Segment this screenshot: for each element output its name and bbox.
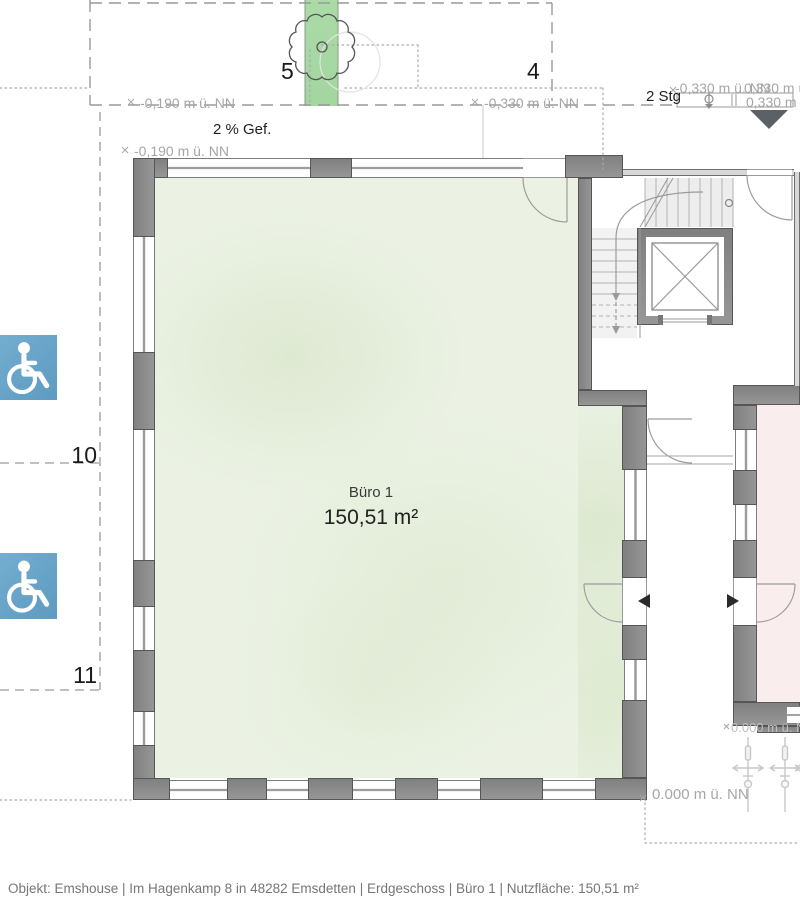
stair-left-flight-pad: [592, 228, 637, 338]
window-left-2: [133, 430, 155, 560]
wall-left-seg2: [133, 352, 155, 430]
level-label-top: -0,190 m ü. NN: [140, 95, 235, 111]
window-bottom-4: [438, 780, 480, 800]
adjacent-room-fill: [757, 405, 800, 702]
accessible-parking-sign-1: [0, 335, 57, 400]
wall-stairhall-right: [794, 172, 800, 386]
level-label-right-lower: 0,330 m ü: [746, 94, 800, 110]
dashed-building-outline: [90, 0, 677, 105]
wall-corridor-left-2: [622, 540, 647, 578]
wall-pink-left-4: [733, 625, 757, 702]
wall-pink-left-2: [733, 470, 757, 505]
window-bottom-5: [543, 780, 595, 800]
wall-bottom-corner-l: [133, 778, 170, 800]
wall-left-seg4: [133, 650, 155, 712]
stairhall-door-opening: [747, 169, 792, 176]
wall-pink-top: [733, 385, 800, 405]
wall-corridor-left-4: [622, 700, 647, 778]
window-pink-2: [735, 505, 757, 540]
wall-bottom-corner-r: [595, 778, 647, 800]
grid-axis-4: 4: [527, 58, 540, 85]
window-bottom-3: [353, 780, 395, 800]
room-name: Büro 1: [271, 484, 471, 501]
footer-project-info: Objekt: Emshouse | Im Hagenkamp 8 in 482…: [8, 881, 639, 896]
planting-strip: [305, 0, 338, 106]
grid-axis-10: 10: [57, 442, 97, 469]
grid-axis-11: 11: [57, 662, 97, 689]
window-left-1: [133, 237, 155, 352]
wall-bottom-pier-3: [395, 778, 438, 800]
window-corridor-left: [624, 470, 647, 540]
grid-axis-5: 5: [281, 58, 294, 85]
room-area: 150,51 m²: [271, 506, 471, 530]
wall-step: [578, 390, 647, 406]
wall-top-pier: [310, 158, 352, 178]
wheelchair-icon: [0, 553, 57, 619]
wall-bottom-pier-1: [227, 778, 267, 800]
wheelchair-icon: [0, 335, 57, 400]
elevator-shaft-inner: [646, 237, 724, 316]
pink-door-opening: [733, 578, 757, 625]
level-label-wall: -0,190 m ü. NN: [134, 143, 229, 159]
wall-bottom-pier-2: [308, 778, 353, 800]
stair-upper-flight-pad: [645, 178, 733, 227]
level-label-mid: -0,330 m ü. NN: [484, 95, 579, 111]
window-top-1: [168, 158, 310, 178]
window-corridor-left-2: [624, 660, 647, 700]
window-bottom-2: [267, 780, 308, 800]
level-label-zero: 0.000 m ü. NN: [652, 786, 749, 803]
wall-stair-divider: [578, 178, 592, 390]
wall-corridor-left-3: [622, 625, 647, 660]
wall-bottom-pier-4: [480, 778, 543, 800]
wall-left-seg1: [133, 158, 155, 237]
window-top-2: [352, 158, 523, 178]
wall-pink-left-1: [733, 405, 757, 430]
window-left-4: [133, 712, 155, 745]
slope-label: 2 % Gef.: [213, 121, 271, 138]
accessible-parking-sign-2: [0, 553, 57, 619]
entry-door-opening-top: [523, 158, 567, 178]
wall-left-seg3: [133, 560, 155, 607]
room-buero1-fill: [155, 175, 578, 778]
window-pink-1: [735, 430, 757, 470]
wall-pink-left-3: [733, 540, 757, 578]
buero-door-opening: [622, 578, 647, 625]
window-bottom-1: [170, 780, 227, 800]
wall-corridor-left-1: [622, 406, 647, 470]
wall-top-t-pier: [565, 155, 623, 178]
window-left-3: [133, 607, 155, 650]
entrance-marker-icon: [750, 110, 788, 129]
level-label-zero-clipped: 0.000 m ü. NN: [731, 720, 800, 735]
room-buero1-fill-ext: [578, 406, 624, 778]
floor-plan: -0,190 m ü. NN -0,190 m ü. NN 2 % Gef. -…: [0, 0, 800, 911]
